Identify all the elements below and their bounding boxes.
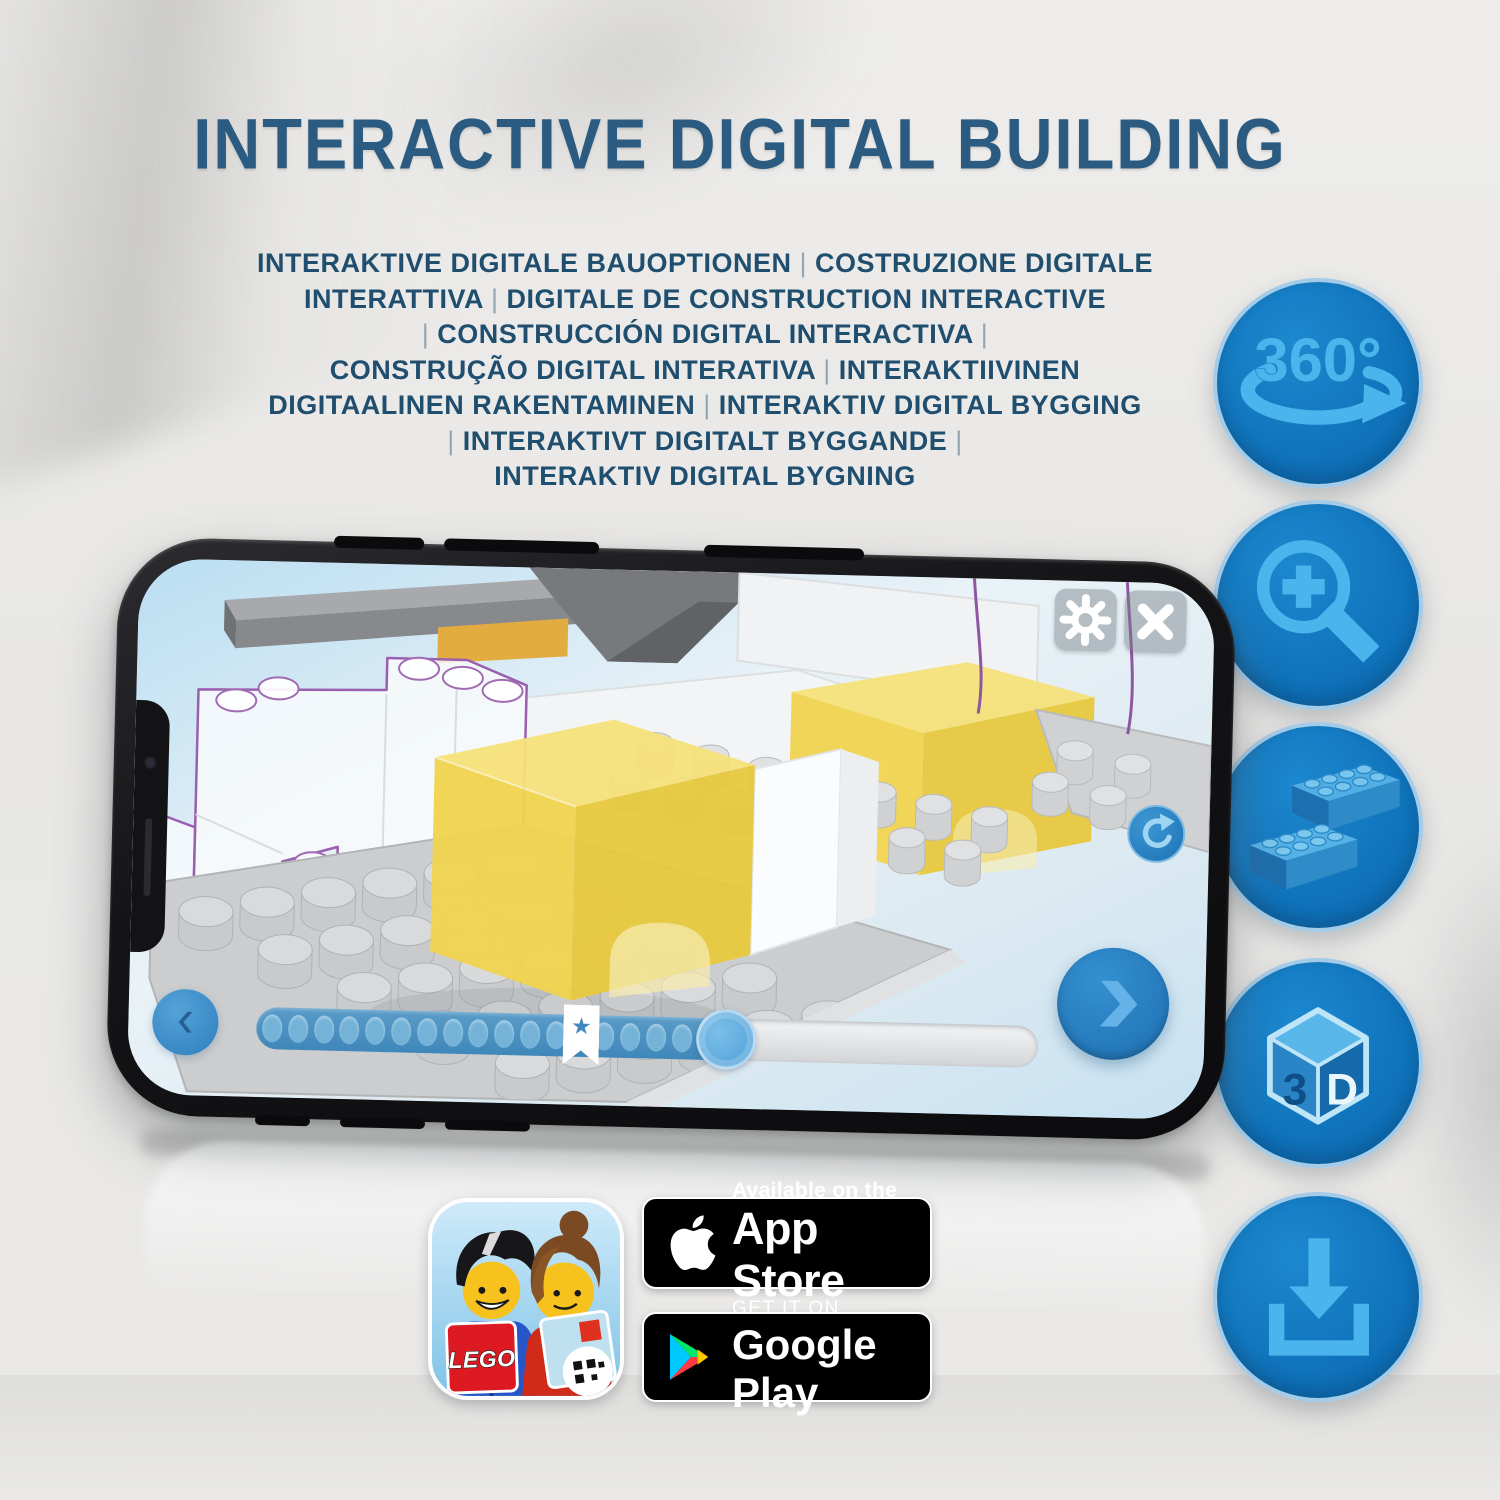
subtitle-line: | INTERAKTIVT DIGITALT BYGGANDE | <box>155 424 1255 460</box>
speaker-slit <box>143 818 152 896</box>
svg-text:3: 3 <box>1283 1065 1308 1114</box>
google-play-badge[interactable]: GET IT ON Google Play <box>642 1312 932 1402</box>
progress-dot <box>494 1020 515 1048</box>
subtitle-line: DIGITAALINEN RAKENTAMINEN | INTERAKTIV D… <box>155 388 1255 424</box>
progress-dot <box>262 1014 283 1042</box>
instruction-card <box>540 1311 618 1396</box>
progress-dot <box>442 1018 463 1046</box>
chevron-left-icon <box>165 1002 206 1043</box>
phone-speaker-port <box>255 1115 310 1126</box>
progress-dot <box>288 1015 309 1043</box>
phone-speaker-port <box>340 1117 425 1129</box>
multilingual-subtitle: INTERAKTIVE DIGITALE BAUOPTIONEN | COSTR… <box>155 246 1255 495</box>
progress-dot <box>620 1023 641 1051</box>
phone-volume-button <box>334 536 424 550</box>
subtitle-line: | CONSTRUCCIÓN DIGITAL INTERACTIVA | <box>155 317 1255 353</box>
phone-notch <box>130 700 170 953</box>
subtitle-line: INTERAKTIV DIGITAL BYGNING <box>155 459 1255 495</box>
phone-mockup: ★ <box>105 536 1237 1141</box>
chevron-right-icon <box>1072 963 1154 1045</box>
google-play-icon <box>660 1333 722 1381</box>
progress-dot <box>520 1020 541 1048</box>
close-button[interactable] <box>1124 590 1187 653</box>
progress-dot <box>313 1015 334 1043</box>
progress-dot <box>672 1024 693 1052</box>
feature-360-rotation: 360° <box>1213 278 1423 488</box>
progress-dot <box>391 1017 412 1045</box>
progress-dot <box>646 1023 667 1051</box>
svg-text:D: D <box>1326 1065 1358 1114</box>
page-title: INTERACTIVE DIGITAL BUILDING <box>0 102 1480 185</box>
yellow-brick-large <box>429 715 756 1005</box>
app-store-badge[interactable]: Available on the App Store <box>642 1197 932 1289</box>
brick-icon <box>1217 722 1419 932</box>
gear-icon <box>1057 591 1114 648</box>
feature-zoom <box>1213 500 1423 710</box>
rotate-model-button[interactable] <box>1127 804 1186 863</box>
feature-download <box>1213 1192 1423 1402</box>
progress-dot <box>365 1017 386 1045</box>
progress-dot <box>468 1019 489 1047</box>
lego-app-icon-art: LEGO <box>432 1202 620 1396</box>
badge-line1: Available on the <box>732 1179 914 1203</box>
3d-cube-icon: 3 D <box>1217 958 1419 1168</box>
feature-bricks <box>1213 722 1423 932</box>
marketing-panel: INTERACTIVE DIGITAL BUILDING INTERAKTIVE… <box>0 0 1500 1500</box>
360-rotation-icon: 360° <box>1217 278 1419 488</box>
rotate-icon <box>1134 811 1179 856</box>
progress-dot <box>417 1018 438 1046</box>
slider-thumb[interactable] <box>695 1009 756 1070</box>
phone-screen: ★ <box>127 558 1216 1120</box>
badge-line2: Google Play <box>732 1321 914 1417</box>
lego-app-icon: LEGO <box>428 1198 624 1400</box>
progress-dot <box>339 1016 360 1044</box>
camera-icon <box>144 756 157 769</box>
feature-3d-view: 3 D <box>1213 958 1423 1168</box>
download-icon <box>1217 1192 1419 1402</box>
svg-text:360°: 360° <box>1254 326 1381 395</box>
phone-speaker-port <box>445 1120 530 1132</box>
zoom-in-icon <box>1217 500 1419 710</box>
subtitle-line: CONSTRUÇÃO DIGITAL INTERATIVA | INTERAKT… <box>155 353 1255 389</box>
lego-logo: LEGO <box>446 1322 517 1393</box>
settings-button[interactable] <box>1054 588 1117 651</box>
svg-text:LEGO: LEGO <box>448 1345 516 1373</box>
apple-icon <box>660 1214 722 1272</box>
close-icon <box>1132 598 1179 645</box>
badge-line1: GET IT ON <box>732 1298 914 1320</box>
subtitle-line: INTERAKTIVE DIGITALE BAUOPTIONEN | COSTR… <box>155 246 1255 282</box>
subtitle-line: INTERATTIVA | DIGITALE DE CONSTRUCTION I… <box>155 282 1255 318</box>
badge-line2: App Store <box>732 1203 914 1307</box>
